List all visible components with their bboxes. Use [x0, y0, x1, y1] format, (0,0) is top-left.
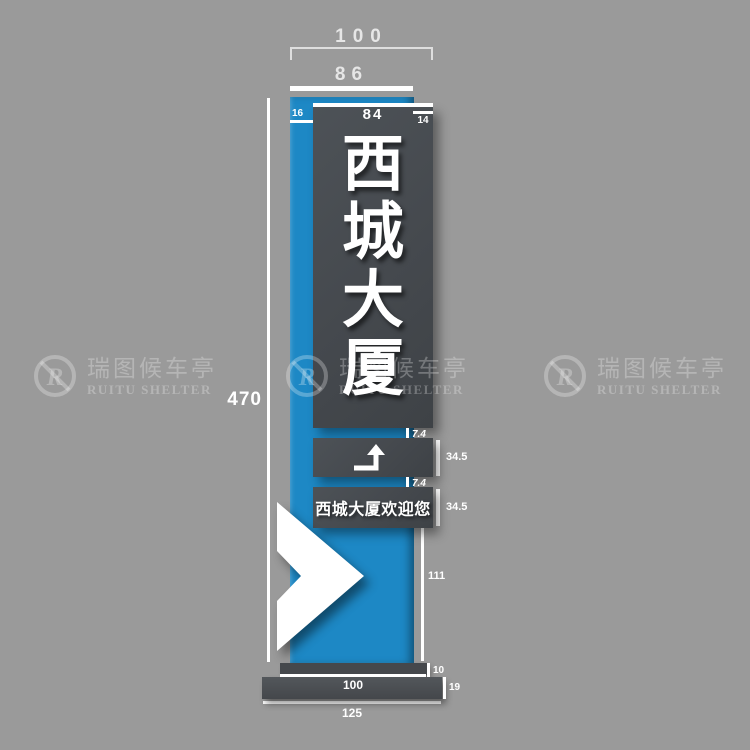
- dim-gap-bottom-label: 7.4: [412, 478, 426, 489]
- turn-up-arrow-icon: [342, 443, 404, 473]
- ruitu-logo-icon: R: [32, 353, 78, 399]
- watermark: R 瑞图候车亭 RUITU SHELTER: [32, 350, 217, 402]
- dim-base-height-label: 19: [449, 682, 460, 693]
- svg-text:R: R: [556, 364, 574, 391]
- dim-left-inset-tick: [290, 120, 313, 123]
- dim-base-width-label: 125: [287, 706, 417, 720]
- dim-top-width-label: 100: [290, 26, 433, 48]
- watermark-title: 瑞图候车亭: [597, 357, 727, 380]
- dim-gap-top-label: 7.4: [412, 429, 426, 440]
- main-sign-char: 大: [342, 267, 404, 335]
- dim-foot-plate-height-label: 10: [433, 665, 444, 676]
- dim-arrow-panel-height-label: 34.5: [446, 451, 467, 463]
- dim-lower-column-line: [421, 528, 424, 661]
- main-sign-char: 城: [342, 199, 404, 267]
- dim-foot-plate-height-tick: [427, 663, 430, 677]
- dim-welcome-panel-height-bar: [436, 489, 440, 526]
- dim-gap-top-tick: [406, 428, 409, 438]
- dim-top-width-bracket: [290, 47, 433, 60]
- ruitu-logo-icon: R: [542, 353, 588, 399]
- dim-gap-bottom-tick: [406, 477, 409, 487]
- dim-right-inset-tick: [413, 111, 433, 114]
- dim-foot-plate-width-line: [280, 674, 426, 677]
- dim-arrow-panel-height-bar: [436, 440, 440, 476]
- design-canvas: 100 86 西 城 大 厦 16 84 14 470 7.4 34.5 7.4…: [0, 0, 750, 750]
- dim-welcome-panel-height-label: 34.5: [446, 501, 467, 513]
- main-sign-panel: 西 城 大 厦: [313, 107, 433, 428]
- dim-foot-plate-width-label: 100: [280, 678, 426, 692]
- watermark-title: 瑞图候车亭: [87, 357, 217, 380]
- dim-base-width-line: [263, 701, 441, 704]
- dim-left-inset-label: 16: [292, 108, 303, 119]
- watermark-subtitle: RUITU SHELTER: [597, 383, 727, 396]
- watermark-subtitle: RUITU SHELTER: [87, 383, 217, 396]
- dim-face-width-bar: [290, 86, 413, 91]
- direction-sign-panel: [313, 438, 433, 477]
- chevron-arrow-graphic: [258, 488, 383, 668]
- dim-base-height-bar: [443, 677, 446, 699]
- watermark: R 瑞图候车亭 RUITU SHELTER: [542, 350, 727, 402]
- dim-right-inset-label: 14: [409, 115, 437, 126]
- svg-text:R: R: [46, 364, 64, 391]
- main-sign-char: 厦: [342, 335, 404, 403]
- main-sign-char: 西: [342, 131, 404, 199]
- dim-total-height-label: 470: [210, 389, 262, 411]
- dim-lower-column-label: 111: [428, 570, 445, 582]
- dim-face-width-label: 86: [290, 64, 413, 86]
- main-sign-vertical-text: 西 城 大 厦: [313, 131, 433, 403]
